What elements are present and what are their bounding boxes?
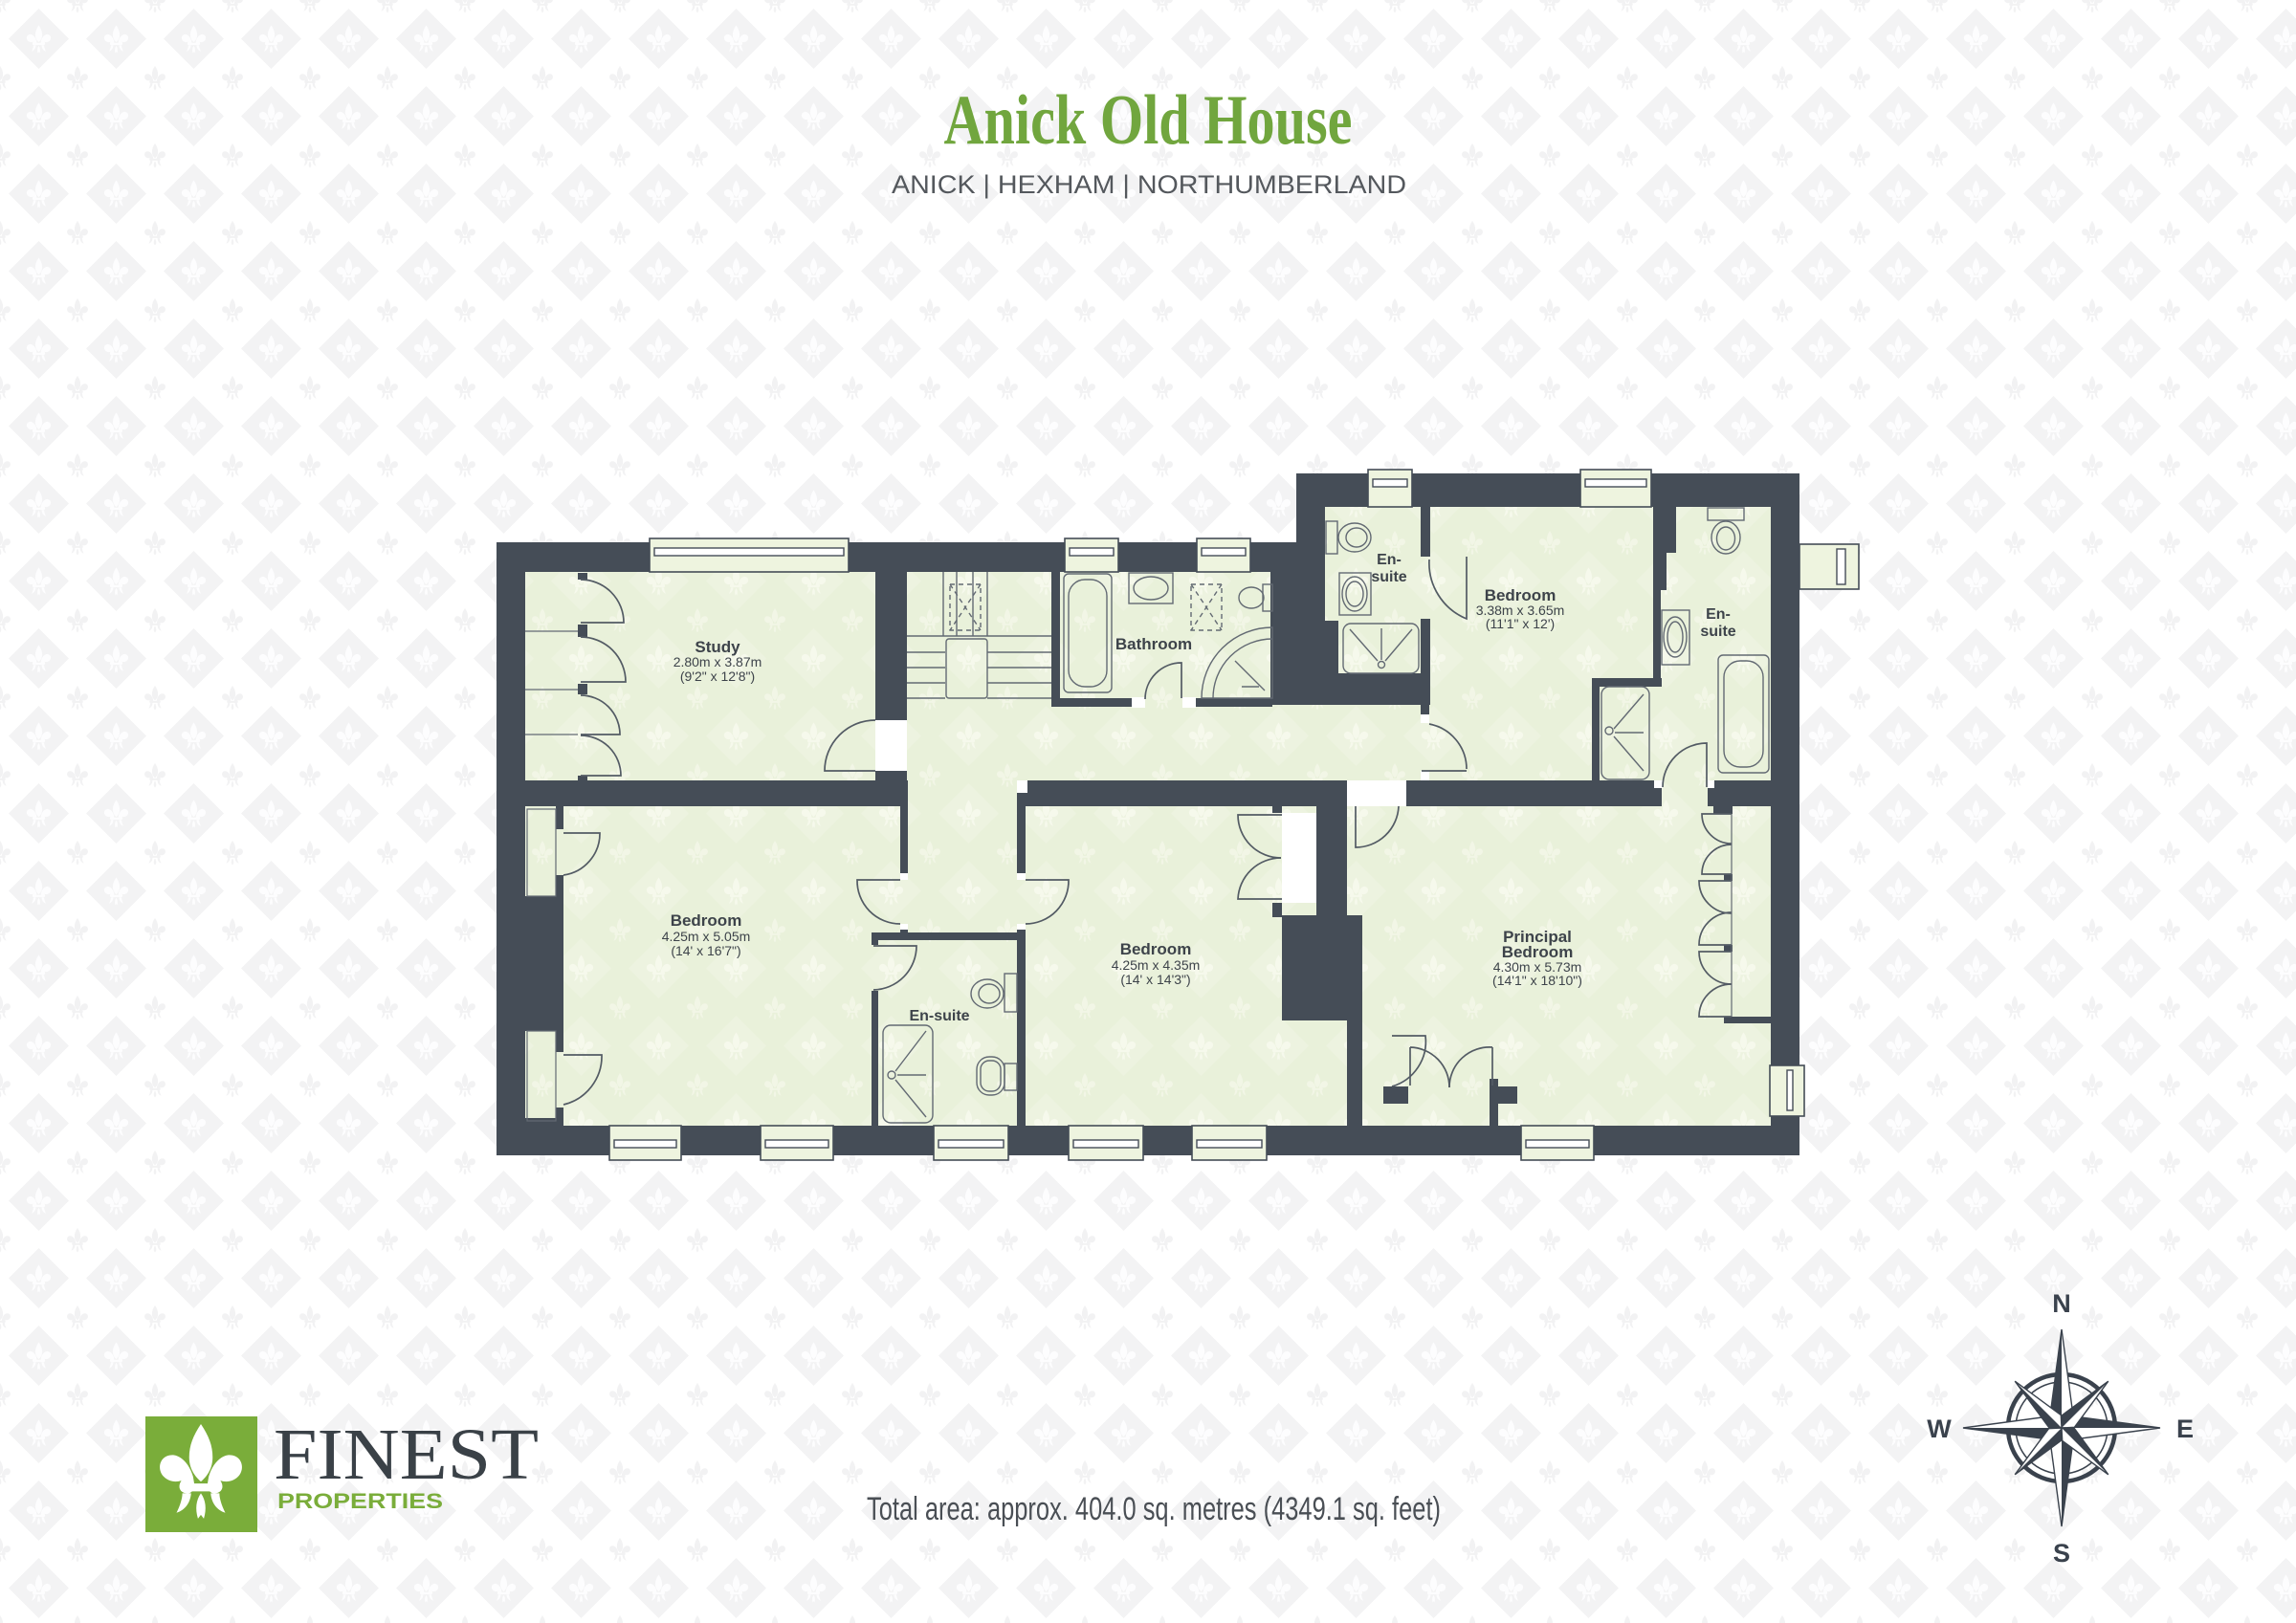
svg-text:ANICK | HEXHAM | NORTHUMBERLAN: ANICK | HEXHAM | NORTHUMBERLAND — [892, 170, 1406, 199]
svg-text:En-: En- — [1377, 552, 1402, 568]
svg-text:4.25m x 4.35m: 4.25m x 4.35m — [1112, 957, 1201, 973]
svg-text:Bedroom: Bedroom — [1120, 940, 1192, 958]
svg-text:Total area: approx. 404.0 sq.: Total area: approx. 404.0 sq. metres (43… — [867, 1491, 1441, 1527]
svg-text:4.25m x 5.05m: 4.25m x 5.05m — [662, 929, 751, 944]
svg-text:Bedroom: Bedroom — [671, 911, 742, 930]
svg-text:(14' x 14'3"): (14' x 14'3") — [1120, 972, 1190, 987]
svg-text:Bathroom: Bathroom — [1115, 635, 1192, 653]
svg-text:W: W — [1927, 1415, 1952, 1443]
svg-text:E: E — [2176, 1415, 2194, 1443]
svg-text:Anick Old House: Anick Old House — [944, 81, 1353, 160]
svg-text:suite: suite — [1700, 624, 1735, 640]
svg-text:En-: En- — [1706, 606, 1731, 623]
svg-text:En-suite: En-suite — [909, 1008, 969, 1024]
svg-text:(11'1" x 12'): (11'1" x 12') — [1486, 616, 1555, 631]
svg-text:PROPERTIES: PROPERTIES — [277, 1489, 443, 1513]
svg-text:suite: suite — [1371, 569, 1406, 585]
svg-text:2.80m x 3.87m: 2.80m x 3.87m — [673, 654, 762, 669]
svg-text:(14' x 16'7"): (14' x 16'7") — [671, 943, 740, 958]
svg-text:FINEST: FINEST — [274, 1415, 539, 1495]
svg-text:S: S — [2053, 1539, 2070, 1568]
svg-text:N: N — [2052, 1289, 2071, 1318]
svg-text:(9'2" x 12'8"): (9'2" x 12'8") — [680, 669, 755, 684]
svg-text:(14'1" x 18'10"): (14'1" x 18'10") — [1492, 973, 1582, 988]
